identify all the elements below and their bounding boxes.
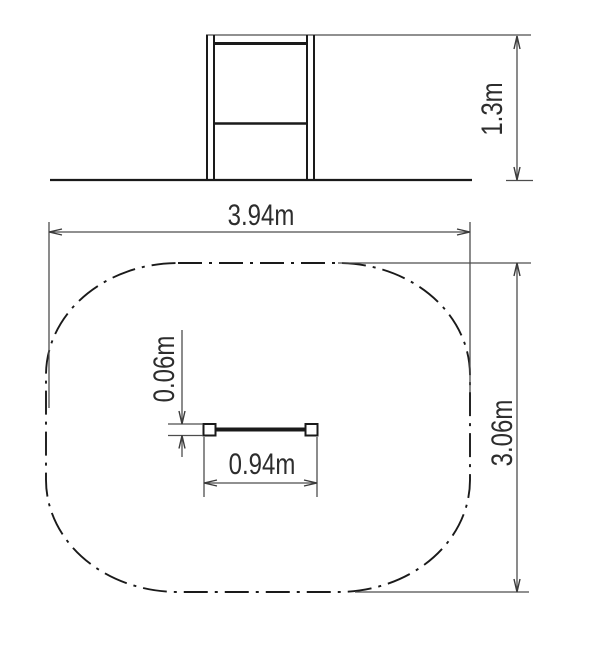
zone-width-label: 3.06m — [488, 400, 518, 467]
bar-diameter-label: 0.06m — [150, 336, 180, 403]
zone-length-dimension — [49, 222, 470, 408]
left-post-plan — [204, 424, 216, 436]
drawing-linework — [0, 0, 600, 663]
bar-plan — [204, 424, 318, 436]
right-post-plan — [306, 424, 318, 436]
bar-length-label: 0.94m — [229, 450, 296, 480]
height-dimension — [506, 36, 533, 181]
right-post — [307, 35, 314, 180]
technical-drawing: 3.94m 1.3m 0.06m 0.94m 3.06m — [0, 0, 600, 663]
elevation-height-label: 1.3m — [478, 82, 508, 135]
elevation-view — [50, 35, 533, 181]
left-post — [207, 35, 214, 180]
plan-view — [46, 222, 531, 592]
zone-length-label: 3.94m — [228, 201, 295, 231]
